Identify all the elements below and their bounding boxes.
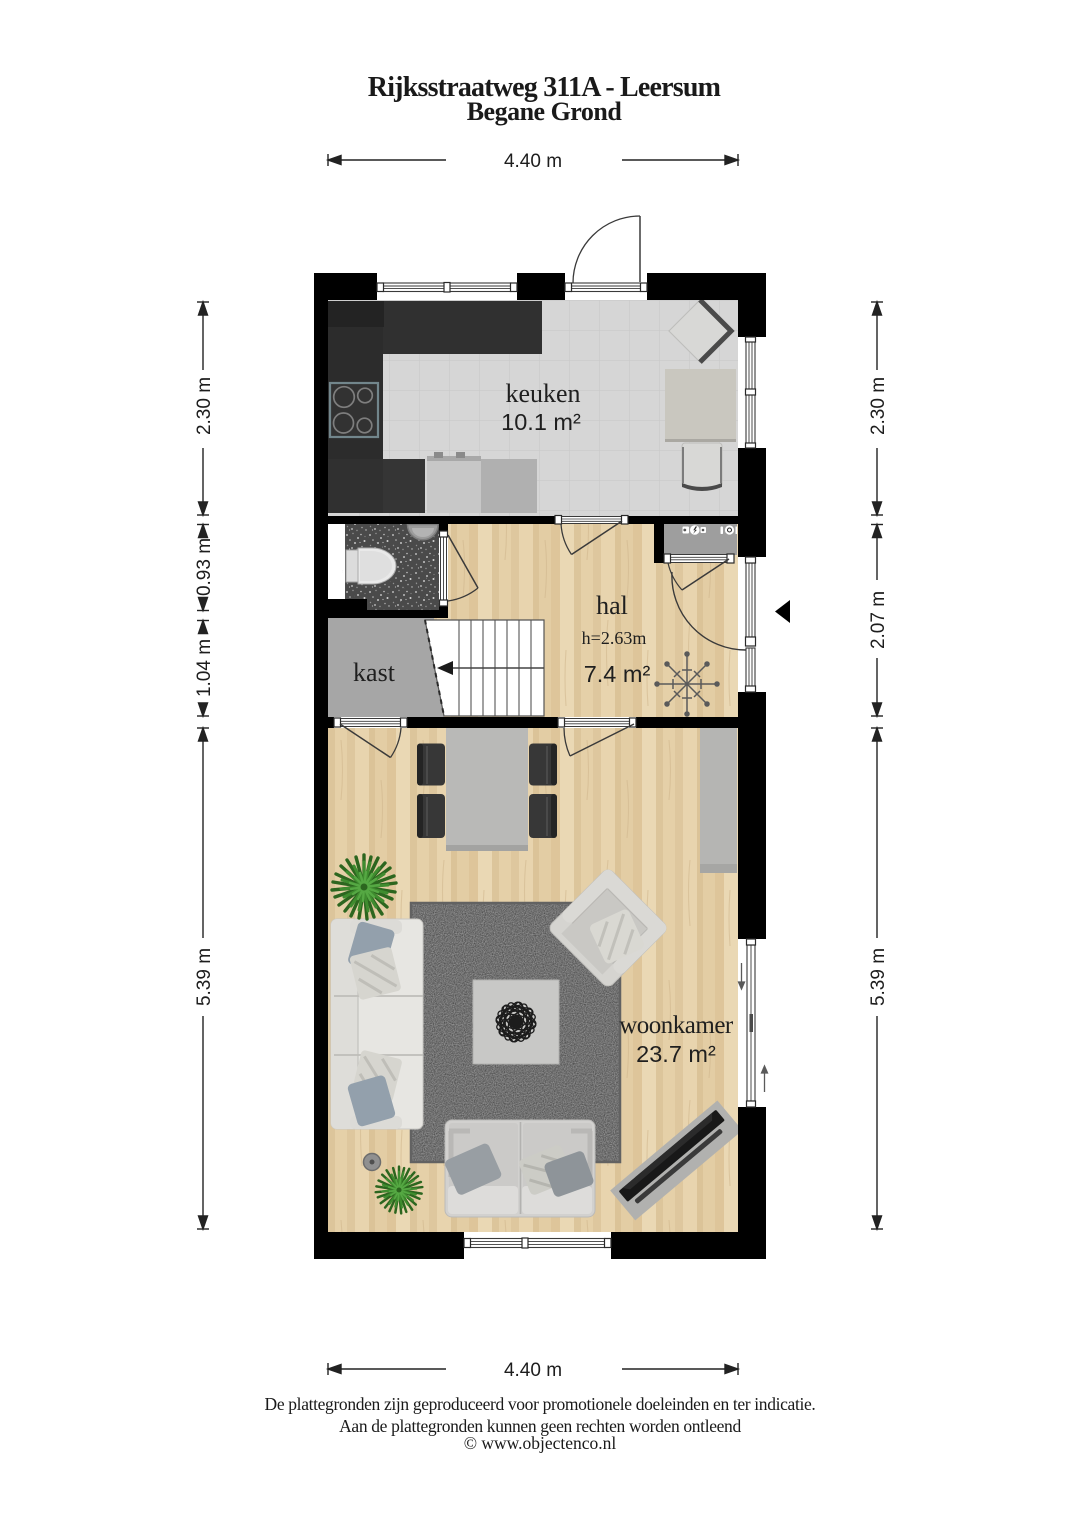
svg-text:Begane Grond: Begane Grond: [467, 97, 623, 126]
svg-text:De plattegronden zijn geproduc: De plattegronden zijn geproduceerd voor …: [265, 1394, 816, 1414]
svg-text:hal: hal: [596, 591, 628, 620]
svg-text:23.7 m²: 23.7 m²: [636, 1041, 716, 1067]
svg-text:2.07 m: 2.07 m: [868, 591, 889, 649]
svg-text:h=2.63m: h=2.63m: [582, 628, 647, 648]
svg-text:woonkamer: woonkamer: [619, 1012, 734, 1039]
svg-text:kast: kast: [353, 658, 396, 687]
svg-text:2.30 m: 2.30 m: [868, 377, 889, 435]
svg-text:© www.objectenco.nl: © www.objectenco.nl: [464, 1433, 617, 1453]
svg-text:4.40 m: 4.40 m: [504, 151, 562, 172]
svg-text:10.1 m²: 10.1 m²: [501, 409, 581, 435]
svg-text:5.39 m: 5.39 m: [868, 948, 889, 1006]
svg-text:2.30 m: 2.30 m: [194, 377, 215, 435]
svg-text:4.40 m: 4.40 m: [504, 1360, 562, 1381]
svg-text:keuken: keuken: [505, 379, 580, 408]
svg-text:7.4 m²: 7.4 m²: [584, 661, 651, 687]
svg-text:0.93 m: 0.93 m: [194, 538, 215, 596]
svg-text:5.39 m: 5.39 m: [194, 948, 215, 1006]
svg-text:1.04 m: 1.04 m: [194, 639, 215, 697]
